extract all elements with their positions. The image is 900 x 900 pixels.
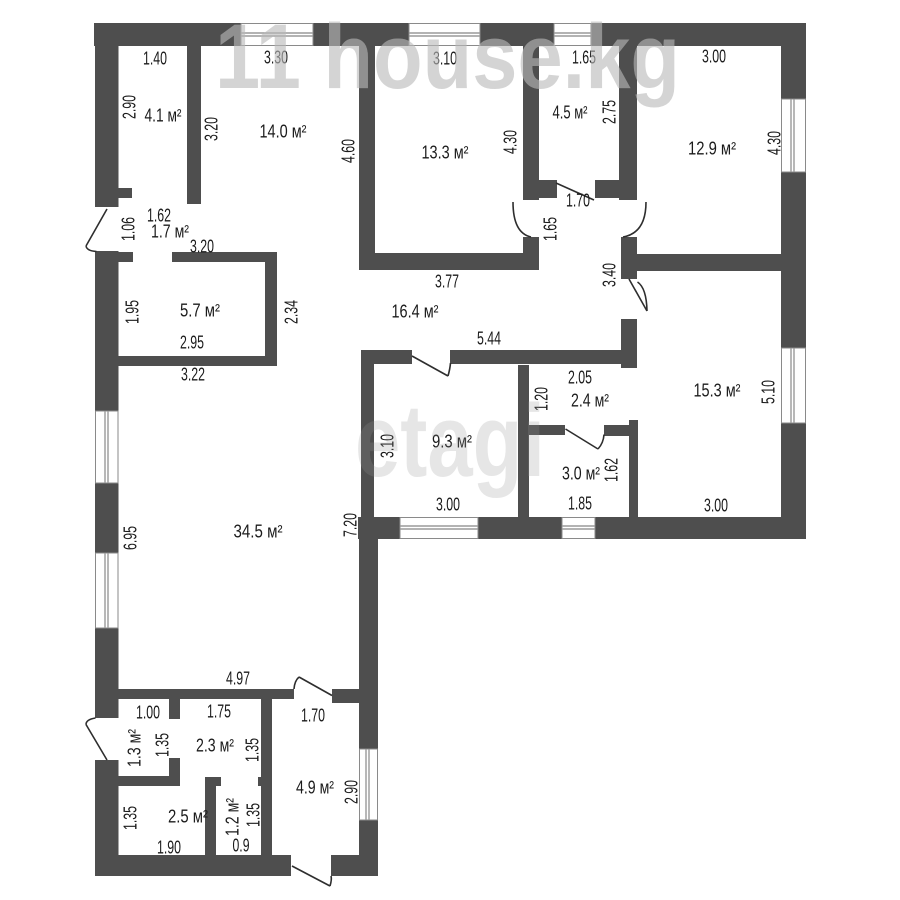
svg-text:1.95: 1.95 bbox=[123, 300, 143, 324]
svg-text:4.30: 4.30 bbox=[501, 130, 521, 154]
svg-text:1.75: 1.75 bbox=[207, 702, 231, 722]
svg-text:2.5 м²: 2.5 м² bbox=[168, 807, 208, 827]
svg-text:1.90: 1.90 bbox=[157, 838, 181, 858]
svg-text:12.9 м²: 12.9 м² bbox=[688, 139, 736, 159]
svg-text:1.70: 1.70 bbox=[301, 706, 325, 726]
svg-text:1.65: 1.65 bbox=[541, 217, 561, 241]
svg-text:1.40: 1.40 bbox=[143, 49, 167, 69]
svg-text:4.9 м²: 4.9 м² bbox=[296, 778, 334, 798]
svg-text:3.0 м²: 3.0 м² bbox=[562, 464, 600, 484]
svg-text:3.00: 3.00 bbox=[704, 496, 728, 516]
svg-text:34.5 м²: 34.5 м² bbox=[234, 522, 283, 542]
svg-text:3.20: 3.20 bbox=[202, 117, 222, 141]
svg-text:4.30: 4.30 bbox=[765, 131, 785, 155]
svg-text:3.20: 3.20 bbox=[190, 237, 214, 257]
svg-text:0.9: 0.9 bbox=[233, 836, 250, 856]
svg-text:6.95: 6.95 bbox=[121, 526, 141, 550]
svg-text:5.7 м²: 5.7 м² bbox=[180, 301, 220, 321]
svg-text:2.4 м²: 2.4 м² bbox=[571, 391, 609, 411]
svg-text:5.44: 5.44 bbox=[477, 329, 501, 349]
svg-text:3.00: 3.00 bbox=[702, 47, 726, 67]
svg-text:4.1 м²: 4.1 м² bbox=[145, 106, 182, 126]
svg-text:15.3 м²: 15.3 м² bbox=[694, 381, 741, 401]
svg-text:2.34: 2.34 bbox=[282, 300, 302, 324]
svg-text:1.35: 1.35 bbox=[244, 803, 264, 827]
svg-text:3.40: 3.40 bbox=[600, 263, 620, 287]
svg-text:2.90: 2.90 bbox=[120, 95, 140, 119]
svg-text:5.10: 5.10 bbox=[759, 380, 779, 404]
svg-text:1.70: 1.70 bbox=[566, 191, 590, 211]
svg-text:2.95: 2.95 bbox=[180, 333, 204, 353]
svg-text:1.85: 1.85 bbox=[568, 494, 592, 514]
svg-text:1.35: 1.35 bbox=[243, 738, 263, 762]
svg-text:1.3 м²: 1.3 м² bbox=[125, 729, 145, 767]
svg-text:3.77: 3.77 bbox=[435, 272, 459, 292]
svg-text:1.06: 1.06 bbox=[119, 217, 139, 241]
svg-text:14.0 м²: 14.0 м² bbox=[260, 122, 307, 142]
svg-text:4.60: 4.60 bbox=[339, 139, 359, 163]
svg-text:1.2 м²: 1.2 м² bbox=[223, 798, 243, 836]
svg-text:4.97: 4.97 bbox=[226, 669, 250, 689]
svg-text:7.20: 7.20 bbox=[341, 513, 361, 537]
svg-text:2.3 м²: 2.3 м² bbox=[196, 736, 234, 756]
svg-text:2.90: 2.90 bbox=[342, 780, 362, 804]
svg-text:11 house.kg: 11 house.kg bbox=[215, 6, 680, 108]
svg-text:3.22: 3.22 bbox=[181, 365, 205, 385]
svg-text:1.35: 1.35 bbox=[121, 806, 141, 830]
svg-text:etagi: etagi bbox=[355, 383, 545, 498]
svg-text:1.62: 1.62 bbox=[602, 458, 622, 482]
svg-text:1.35: 1.35 bbox=[153, 733, 173, 757]
svg-text:1.00: 1.00 bbox=[136, 703, 160, 723]
svg-text:13.3 м²: 13.3 м² bbox=[422, 143, 469, 163]
svg-text:2.05: 2.05 bbox=[568, 368, 592, 388]
svg-text:1.7 м²: 1.7 м² bbox=[151, 222, 189, 242]
svg-text:16.4 м²: 16.4 м² bbox=[392, 302, 439, 322]
